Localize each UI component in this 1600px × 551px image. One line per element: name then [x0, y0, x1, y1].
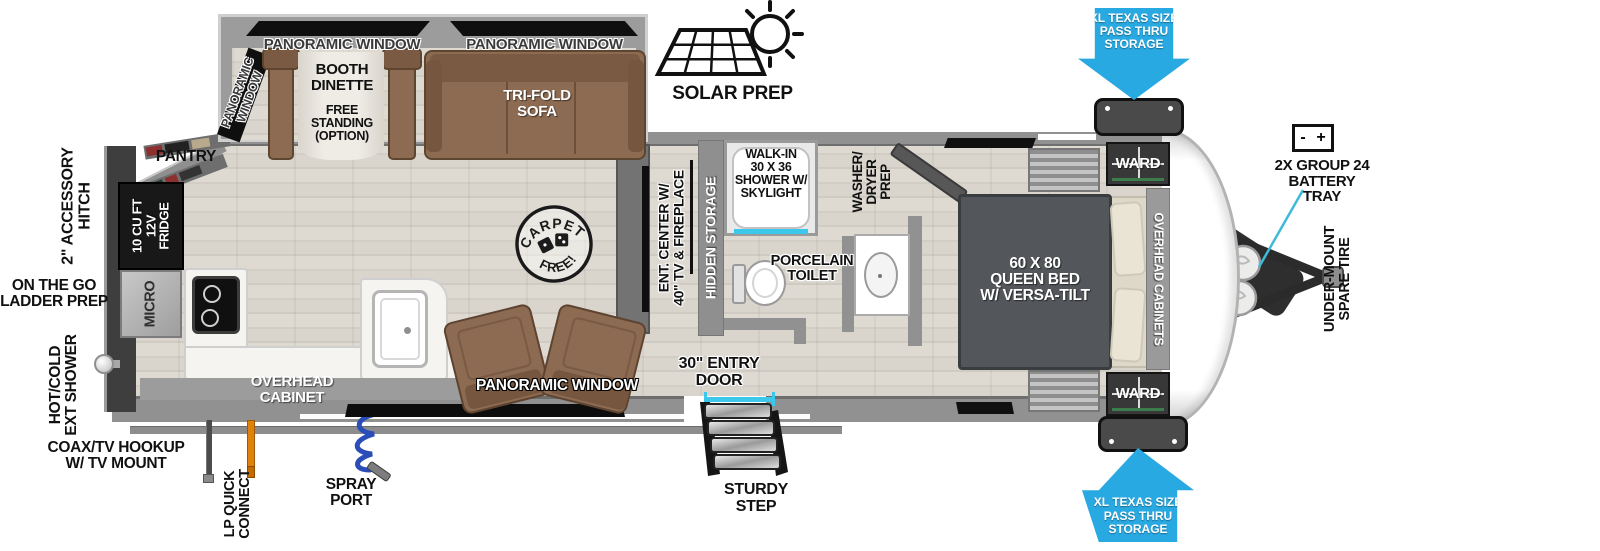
panoramic-window-label-bottom: PANORAMIC WINDOW — [468, 378, 646, 394]
vanity-sink — [864, 252, 898, 298]
sofa-armrest-right — [628, 60, 644, 152]
ext-shower-label: HOT/COLD EXT SHOWER — [48, 322, 80, 448]
ext-shower-knob — [94, 354, 114, 374]
coax-cable — [206, 420, 212, 476]
overhead-cabinet-label: OVERHEAD CABINET — [232, 374, 352, 405]
rivet — [1109, 439, 1114, 444]
panoramic-window-label-right: PANORAMIC WINDOW — [452, 37, 637, 53]
pass-thru-compartment-top — [1094, 98, 1184, 136]
solar-prep-icon — [652, 0, 812, 84]
carpet-free-stamp: CARPET FREE! — [505, 195, 602, 292]
sofa-armrest-left — [426, 60, 442, 152]
queen-bed-label: 60 X 80 QUEEN BED W/ VERSA-TILT — [958, 256, 1112, 304]
battery-plus: + — [1316, 129, 1325, 147]
wardrobe-trim — [1112, 408, 1164, 411]
sturdy-step-graphic — [692, 400, 792, 480]
pass-thru-label-bottom: XL TEXAS SIZE PASS THRU STORAGE — [1082, 496, 1194, 536]
lp-quick-connect-label: LP QUICK CONNECT — [223, 456, 253, 551]
rivet — [1168, 106, 1173, 111]
pillow-top — [1109, 201, 1146, 277]
bath-wall-bottom-return — [794, 318, 806, 344]
overhead-cabinets-label: OVERHEAD CABINETS — [1152, 190, 1165, 368]
spare-tire-label: UNDER-MOUNT SPARE TIRE — [1323, 213, 1353, 345]
sofa-back-cushion — [430, 54, 640, 82]
coax-hookup-label: COAX/TV HOOKUP W/ TV MOUNT — [26, 440, 206, 472]
rivet — [1105, 106, 1110, 111]
booth-option-label: FREE STANDING (OPTION) — [298, 104, 386, 143]
nightstand-bottom — [1028, 370, 1100, 412]
hidden-storage-divider — [690, 160, 693, 274]
vanity-drain — [878, 274, 882, 278]
burner — [203, 285, 221, 303]
tv-bar — [642, 166, 649, 312]
bedroom-top-white-gap — [1038, 134, 1096, 140]
burner — [201, 309, 219, 327]
kitchen-sink — [372, 290, 428, 368]
spray-port-label: SPRAY PORT — [310, 477, 392, 509]
ward-top-label: WARD — [1106, 156, 1170, 172]
ward-bottom-label: WARD — [1106, 386, 1170, 402]
battery-minus: - — [1300, 129, 1305, 147]
bedroom-top-window — [944, 138, 1036, 148]
pass-thru-compartment-bottom — [1098, 416, 1188, 452]
slideout-window-bar-right — [450, 21, 638, 36]
sink-basin — [380, 298, 420, 360]
spray-port-hose — [344, 412, 398, 482]
sink-faucet — [404, 327, 411, 334]
bath-wall-vanity-right — [908, 216, 922, 346]
pass-thru-arrow-bottom: XL TEXAS SIZE PASS THRU STORAGE — [1082, 448, 1194, 542]
hidden-storage-label: HIDDEN STORAGE — [704, 143, 719, 333]
entry-door-label: 30" ENTRY DOOR — [656, 356, 782, 389]
front-cap — [1162, 128, 1240, 428]
battery-icon: - + — [1292, 124, 1334, 152]
shower-skylight-bar — [734, 229, 808, 234]
pillow-bottom — [1109, 287, 1146, 363]
nightstand-top — [1028, 148, 1100, 192]
toilet-label: PORCELAIN TOILET — [756, 254, 868, 284]
wardrobe-trim — [1112, 178, 1164, 181]
slideout-window-bar-left — [246, 21, 430, 36]
cooktop — [192, 276, 240, 334]
pass-thru-label-top: XL TEXAS SIZE PASS THRU STORAGE — [1078, 12, 1190, 52]
booth-dinette-label: BOOTH DINETTE — [296, 62, 388, 93]
panoramic-window-label-left: PANORAMIC WINDOW — [252, 37, 432, 53]
floorplan-diagram: XL TEXAS SIZE PASS THRU STORAGE XL TEXAS… — [0, 0, 1600, 551]
trifold-sofa-label: TRI-FOLD SOFA — [482, 88, 592, 119]
pass-thru-arrow-top: XL TEXAS SIZE PASS THRU STORAGE — [1078, 8, 1190, 100]
pantry-label: PANTRY — [138, 149, 234, 165]
fridge-label: 10 CU FT 12V FRIDGE — [131, 183, 172, 269]
washer-dryer-label: WASHER/ DRYER PREP — [851, 134, 893, 230]
bedroom-bottom-window — [956, 402, 1014, 414]
accessory-hitch-label: 2" ACCESSORY HITCH — [60, 140, 93, 272]
battery-tray-label: 2X GROUP 24 BATTERY TRAY — [1252, 158, 1392, 205]
ladder-prep-label: ON THE GO LADDER PREP — [0, 278, 110, 310]
rivet — [1172, 439, 1177, 444]
coax-connector — [203, 474, 214, 483]
solar-prep-label: SOLAR PREP — [650, 84, 815, 104]
ent-center-label: ENT. CENTER W/ 40" TV & FIREPLACE — [656, 142, 685, 334]
sturdy-step-label: STURDY STEP — [706, 482, 806, 515]
shower-label: WALK-IN 30 X 36 SHOWER W/ SKYLIGHT — [724, 148, 818, 200]
micro-label: MICRO — [143, 269, 158, 339]
